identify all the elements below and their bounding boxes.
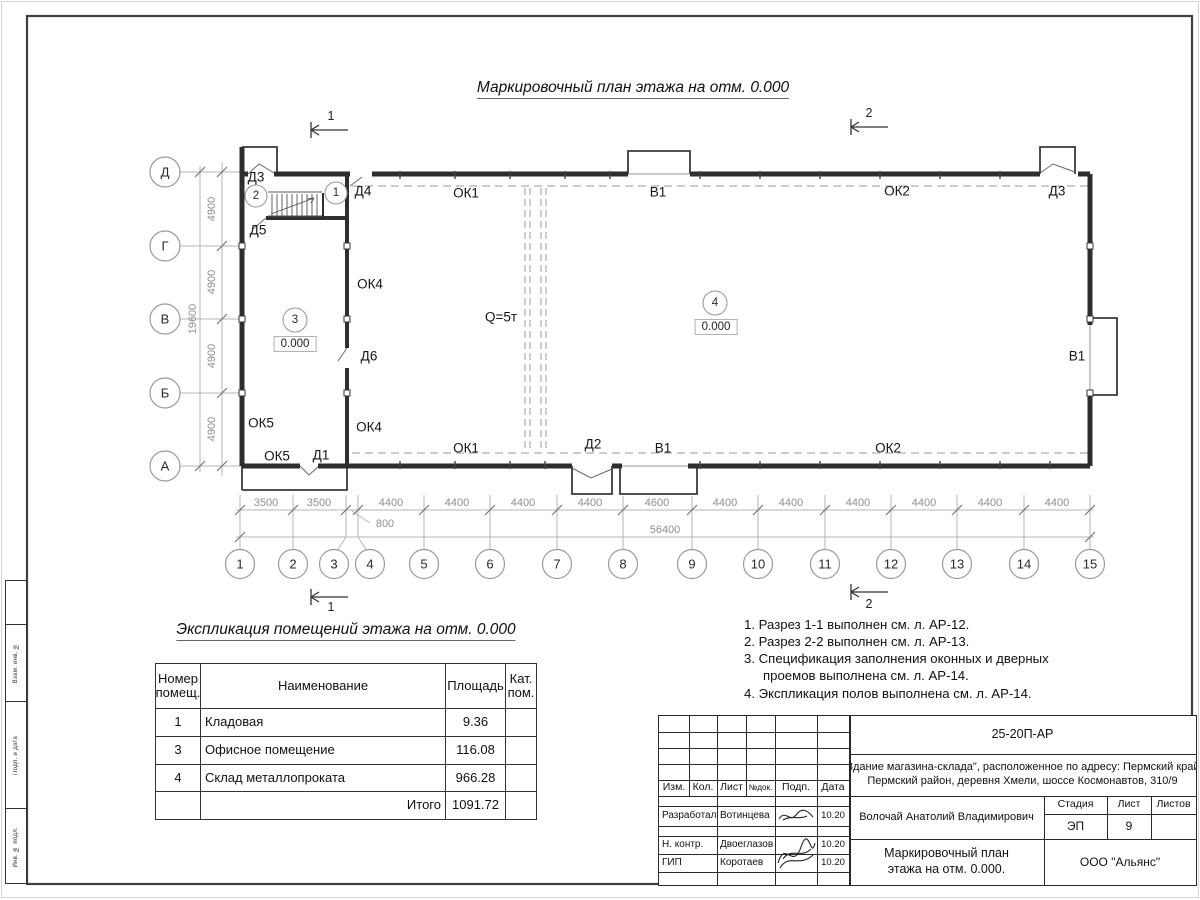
tb-sheets-label: Листов	[1151, 796, 1196, 814]
dim-b13: 4400	[1045, 497, 1069, 509]
dim-b1: 3500	[254, 497, 278, 509]
axis-row-a: А	[161, 459, 170, 474]
dim-b3: 4400	[379, 497, 403, 509]
axis-row-g: Г	[161, 239, 168, 254]
tb-role-gip: ГИП	[659, 854, 717, 872]
dim-b6: 4400	[578, 497, 602, 509]
axis-row-d: Д	[161, 165, 170, 180]
signature-ncontrol-gip	[775, 835, 817, 873]
side-box-podp: Подп. и дата	[6, 701, 26, 808]
total-label: Итого	[201, 792, 446, 819]
tb-header-ndoc: №док.	[746, 780, 775, 796]
signature-developer	[777, 807, 815, 825]
title-block: Изм. Кол. Лист №док. Подп. Дата Разработ…	[658, 715, 1197, 886]
tb-date-ncontrol: 10.20	[817, 836, 849, 854]
tb-line	[659, 748, 849, 749]
crane-rail-dashed-lines	[525, 188, 546, 452]
label-ok1-top: ОК1	[453, 186, 479, 201]
dim-4900-1: 4900	[206, 197, 218, 221]
total-category-empty	[506, 792, 536, 819]
label-ok2-bottom: ОК2	[875, 441, 901, 456]
row1-number: 1	[156, 709, 201, 737]
axis-col-5: 5	[420, 557, 427, 572]
dimension-ticks	[195, 167, 1095, 542]
tb-header-data: Дата	[817, 780, 849, 796]
total-value: 1091.72	[446, 792, 506, 819]
tb-date-developer: 10.20	[817, 806, 849, 826]
side-label-podp: Подп. и дата	[13, 736, 19, 775]
col-header-number: Номер помещ.	[156, 664, 201, 709]
dim-b11: 4400	[912, 497, 936, 509]
plan-title: Маркировочный план этажа на отм. 0.000	[477, 79, 789, 99]
section-mark-1-bottom: 1	[328, 600, 335, 614]
tb-header-izm: Изм.	[659, 780, 689, 796]
porches-and-ramps	[242, 147, 1117, 494]
tb-drawing-title-line1: Маркировочный план	[884, 846, 1009, 862]
tb-header-list: Лист	[717, 780, 746, 796]
explication-table: Номер помещ. Наименование Площадь Кат. п…	[155, 663, 537, 820]
tb-object-line2: Пермский район, деревня Хмели, шоссе Кос…	[867, 775, 1177, 789]
label-d3-top-right: Д3	[1049, 184, 1066, 199]
section-mark-2-top: 2	[866, 106, 873, 120]
tb-sheet-label: Лист	[1107, 796, 1151, 814]
note-2: 2. Разрез 2-2 выполнен см. л. АР-13.	[744, 633, 1090, 650]
tb-header-podp: Подп.	[775, 780, 817, 796]
section-mark-1-top: 1	[328, 109, 335, 123]
tb-line	[659, 872, 849, 873]
total-row-empty	[156, 792, 201, 819]
tb-line	[659, 826, 849, 827]
tb-date-gip: 10.20	[817, 854, 849, 872]
section-mark-arrows	[311, 119, 888, 605]
tb-drawing-title: Маркировочный план этажа на отм. 0.000.	[849, 839, 1044, 885]
dim-b10: 4400	[846, 497, 870, 509]
label-d2: Д2	[585, 437, 602, 452]
axis-and-dimension-lines	[180, 162, 1094, 551]
dim-b4: 4400	[445, 497, 469, 509]
col-header-area: Площадь	[446, 664, 506, 709]
axis-col-4: 4	[366, 557, 373, 572]
label-ok4-upper: ОК4	[357, 277, 383, 292]
dim-b2: 3500	[307, 497, 331, 509]
row1-name: Кладовая	[201, 709, 446, 737]
side-label-inv: Инв. № подл.	[13, 827, 19, 868]
tb-name-gip: Коротаев	[717, 854, 775, 872]
tb-role-developer: Разработал	[659, 806, 717, 826]
row1-category	[506, 709, 536, 737]
room-number-1: 1	[333, 187, 339, 199]
row2-category	[506, 737, 536, 765]
label-v1-top: В1	[650, 185, 667, 200]
tb-stage-value: ЭП	[1044, 814, 1107, 839]
tb-sheets-value	[1151, 814, 1196, 839]
staircase	[268, 192, 322, 216]
dim-19600: 19600	[187, 304, 199, 335]
dim-b12: 4400	[978, 497, 1002, 509]
side-label-vzam: Взам. инв. №	[13, 643, 19, 683]
axis-col-9: 9	[688, 557, 695, 572]
tb-drawing-title-line2: этажа на отм. 0.000.	[888, 862, 1005, 878]
row2-number: 3	[156, 737, 201, 765]
label-ok5-lower: ОК5	[264, 449, 290, 464]
column-markers	[239, 243, 1093, 396]
row3-number: 4	[156, 765, 201, 792]
label-crane-capacity: Q=5т	[485, 310, 517, 325]
tb-doc-number: 25-20П-АР	[849, 716, 1196, 754]
axis-col-12: 12	[884, 557, 898, 572]
tb-author: Волочай Анатолий Владимирович	[849, 796, 1044, 839]
row3-area: 966.28	[446, 765, 506, 792]
axis-col-13: 13	[950, 557, 964, 572]
label-d1: Д1	[313, 448, 330, 463]
dim-4900-4: 4900	[206, 417, 218, 441]
label-v1-right: В1	[1069, 349, 1086, 364]
note-4: 4. Экспликация полов выполнена см. л. АР…	[744, 685, 1090, 702]
tb-sheet-value: 9	[1107, 814, 1151, 839]
room-number-3: 3	[292, 314, 298, 326]
axis-col-2: 2	[289, 557, 296, 572]
label-d3-top-left: Д3	[248, 170, 265, 185]
section-mark-2-bottom: 2	[866, 597, 873, 611]
axis-col-8: 8	[619, 557, 626, 572]
side-box-empty	[6, 581, 26, 624]
tb-line	[659, 732, 849, 733]
tb-company: ООО "Альянс"	[1044, 839, 1196, 885]
label-d4: Д4	[355, 184, 372, 199]
dim-b9: 4400	[779, 497, 803, 509]
axis-col-3: 3	[330, 557, 337, 572]
tb-line	[659, 764, 849, 765]
dim-b8: 4400	[713, 497, 737, 509]
explication-title: Экспликация помещений этажа на отм. 0.00…	[176, 621, 515, 641]
axis-row-v: В	[161, 312, 170, 327]
label-v1-bottom: В1	[655, 441, 672, 456]
side-box-inv: Инв. № подл.	[6, 808, 26, 885]
label-ok4-lower: ОК4	[356, 420, 382, 435]
axis-row-b: Б	[161, 386, 170, 401]
frame-side-column: Взам. инв. № Подп. и дата Инв. № подл.	[5, 580, 27, 884]
axis-col-6: 6	[486, 557, 493, 572]
tb-role-ncontrol: Н. контр.	[659, 836, 717, 854]
axis-col-15: 15	[1083, 557, 1097, 572]
label-ok2-top: ОК2	[884, 184, 910, 199]
gate-lines	[622, 174, 1090, 466]
dim-4900-3: 4900	[206, 344, 218, 368]
room-number-2: 2	[253, 190, 259, 202]
axis-col-14: 14	[1017, 557, 1031, 572]
dim-800: 800	[376, 518, 394, 530]
label-ok5-upper: ОК5	[248, 416, 274, 431]
col-header-category: Кат. пом.	[506, 664, 536, 709]
elevation-mark-room4: 0.000	[695, 319, 738, 335]
row2-area: 116.08	[446, 737, 506, 765]
dim-b7: 4600	[645, 497, 669, 509]
tb-name-developer: Вотинцева	[717, 806, 775, 826]
label-d5: Д5	[250, 223, 267, 238]
row3-name: Склад металлопроката	[201, 765, 446, 792]
tb-object-description: "Здание магазина-склада", расположенное …	[849, 754, 1196, 796]
axis-col-7: 7	[553, 557, 560, 572]
label-ok1-bottom: ОК1	[453, 441, 479, 456]
notes-list: 1. Разрез 1-1 выполнен см. л. АР-12. 2. …	[744, 616, 1090, 702]
col-header-name: Наименование	[201, 664, 446, 709]
axis-col-11: 11	[818, 557, 832, 572]
axis-col-10: 10	[751, 557, 765, 572]
tb-name-ncontrol: Двоеглазов	[717, 836, 775, 854]
row1-area: 9.36	[446, 709, 506, 737]
tb-header-kol: Кол.	[689, 780, 717, 796]
dim-b5: 4400	[511, 497, 535, 509]
drawing-sheet: Маркировочный план этажа на отм. 0.000 Э…	[0, 0, 1200, 900]
axis-col-1: 1	[236, 557, 243, 572]
dim-4900-2: 4900	[206, 270, 218, 294]
tb-object-line1: "Здание магазина-склада", расположенное …	[849, 761, 1196, 775]
elevation-mark-room3: 0.000	[274, 336, 317, 352]
label-d6: Д6	[361, 349, 378, 364]
tb-stage-label: Стадия	[1044, 796, 1107, 814]
note-3: 3. Спецификация заполнения оконных и две…	[744, 650, 1090, 684]
note-1: 1. Разрез 1-1 выполнен см. л. АР-12.	[744, 616, 1090, 633]
side-box-vzam: Взам. инв. №	[6, 624, 26, 701]
room-number-4: 4	[712, 297, 718, 309]
dim-56400: 56400	[650, 524, 681, 536]
row3-category	[506, 765, 536, 792]
row2-name: Офисное помещение	[201, 737, 446, 765]
